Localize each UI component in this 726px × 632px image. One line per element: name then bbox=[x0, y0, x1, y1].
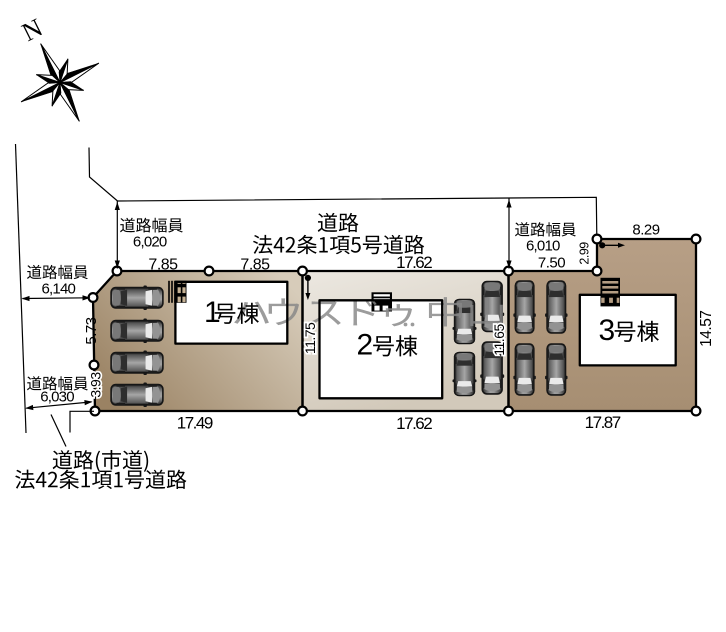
svg-text:6,010: 6,010 bbox=[526, 238, 560, 255]
svg-text:2.99: 2.99 bbox=[578, 242, 592, 265]
svg-text:11.65: 11.65 bbox=[491, 324, 507, 356]
svg-text:7.85: 7.85 bbox=[240, 257, 270, 274]
svg-text:17.62: 17.62 bbox=[396, 253, 432, 272]
svg-text:3: 3 bbox=[599, 314, 616, 347]
svg-text:6,140: 6,140 bbox=[42, 281, 76, 298]
svg-text:5.73: 5.73 bbox=[83, 317, 100, 344]
svg-text:17.62: 17.62 bbox=[396, 414, 432, 433]
svg-text:8.29: 8.29 bbox=[632, 222, 659, 239]
svg-text:3.93: 3.93 bbox=[87, 372, 103, 398]
svg-text:14.57: 14.57 bbox=[698, 311, 715, 347]
svg-text:2: 2 bbox=[357, 329, 374, 362]
svg-text:17.49: 17.49 bbox=[177, 414, 213, 433]
svg-text:7.50: 7.50 bbox=[538, 255, 565, 272]
svg-text:6,030: 6,030 bbox=[40, 389, 74, 406]
svg-text:11.75: 11.75 bbox=[302, 322, 318, 354]
svg-text:7.85: 7.85 bbox=[148, 257, 178, 274]
svg-text:17.87: 17.87 bbox=[585, 413, 621, 432]
svg-text:6,020: 6,020 bbox=[133, 234, 167, 251]
